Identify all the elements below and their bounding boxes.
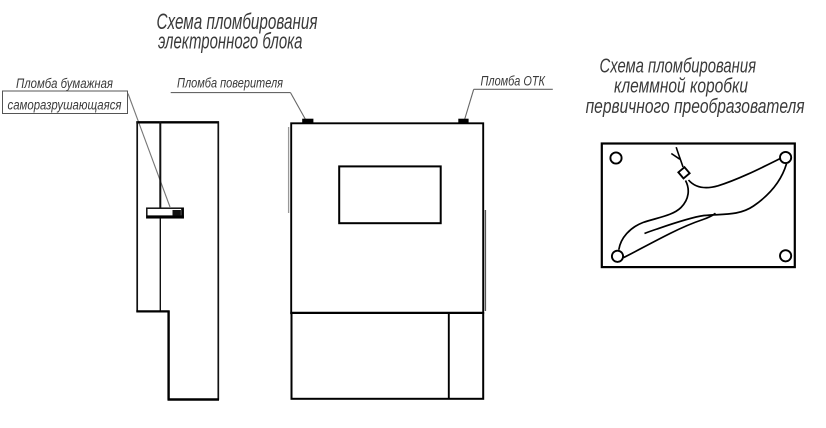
svg-text:электронного блока: электронного блока (158, 29, 303, 54)
svg-text:Пломба ОТК: Пломба ОТК (481, 72, 546, 88)
svg-text:первичного преобразователя: первичного преобразователя (586, 96, 805, 118)
svg-text:клеммной коробки: клеммной коробки (614, 76, 748, 98)
svg-text:Пломба бумажная: Пломба бумажная (16, 76, 113, 91)
svg-text:Пломба поверителя: Пломба поверителя (177, 75, 283, 91)
svg-text:саморазрушающаяся: саморазрушающаяся (8, 98, 122, 113)
svg-text:Схема пломбирования: Схема пломбирования (600, 55, 757, 77)
